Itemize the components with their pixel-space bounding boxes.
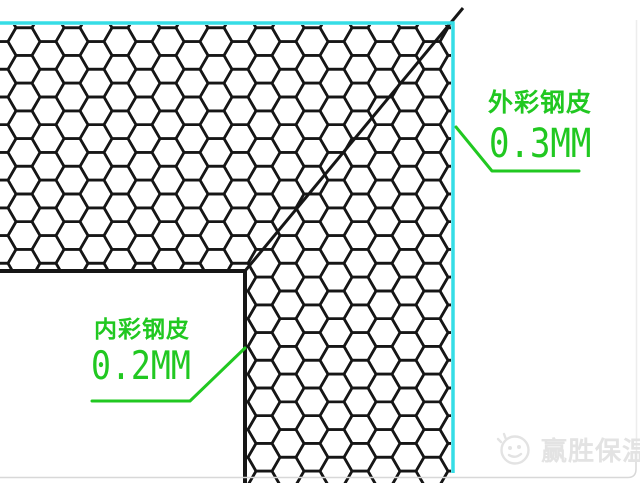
outer-steel-sheet-thickness: 0.3MM	[489, 123, 591, 165]
drawing-layer	[0, 0, 640, 483]
smiley-face-logo-icon	[494, 429, 534, 469]
inner-steel-sheet-label: 内彩钢皮	[94, 317, 190, 341]
honeycomb-hatch-pattern	[0, 0, 472, 483]
panel-corner-diagram: 外彩钢皮 0.3MM 内彩钢皮 0.2MM 赢胜保温	[0, 0, 640, 483]
inner-steel-sheet-thickness: 0.2MM	[91, 347, 191, 388]
watermark: 赢胜保温	[494, 429, 640, 469]
outer-steel-sheet-label: 外彩钢皮	[488, 90, 592, 116]
outer-panel-edge-line	[0, 23, 453, 473]
watermark-text: 赢胜保温	[541, 431, 640, 468]
